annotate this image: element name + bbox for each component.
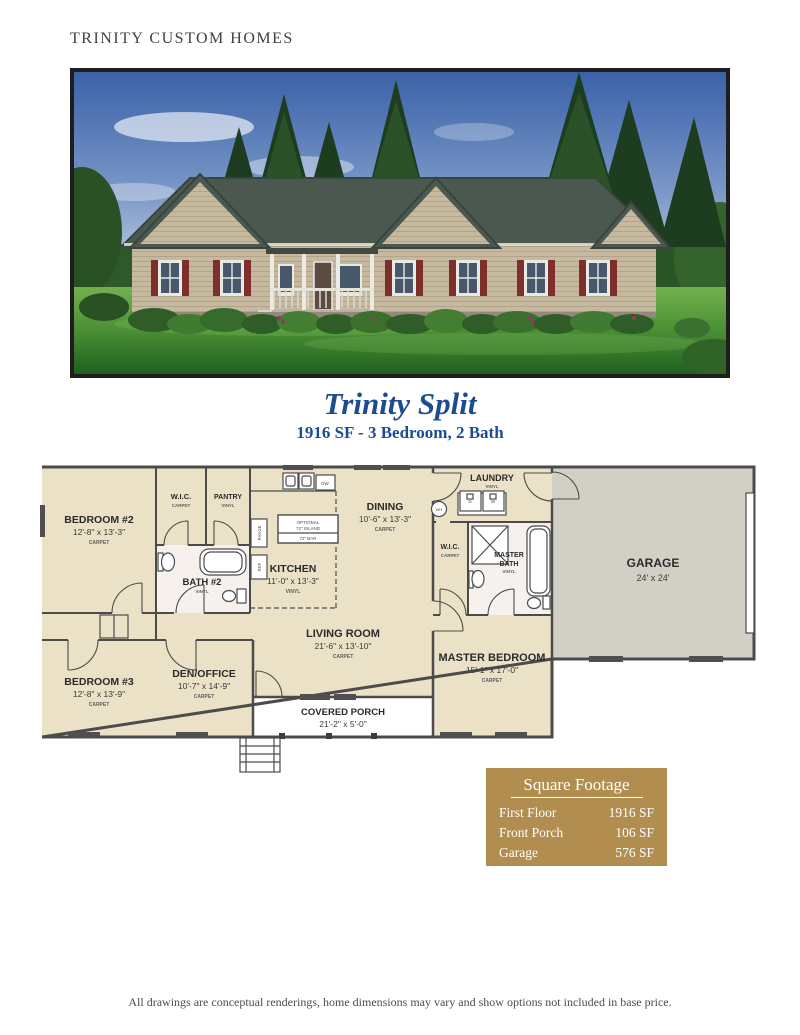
square-footage-panel: Square Footage First Floor 1916 SF Front… — [486, 768, 667, 866]
garage-side-panel — [746, 493, 754, 633]
svg-text:15'-1" x 17'-0": 15'-1" x 17'-0" — [466, 665, 518, 675]
svg-text:10'-6" x 13'-3": 10'-6" x 13'-3" — [359, 514, 411, 524]
master-wic-label: W.I.C. — [440, 544, 459, 551]
row-value: 106 SF — [615, 823, 654, 843]
sqft-row-first-floor: First Floor 1916 SF — [486, 803, 667, 823]
svg-text:CARPET: CARPET — [333, 654, 354, 660]
svg-text:24' x 24': 24' x 24' — [637, 573, 670, 583]
model-title: Trinity Split — [0, 386, 800, 422]
svg-text:CARPET: CARPET — [89, 540, 110, 546]
house-photo — [70, 68, 730, 378]
hall-wic-label: W.I.C. — [171, 492, 191, 501]
bar-label: 72" BAR — [299, 536, 317, 541]
svg-text:CARPET: CARPET — [172, 503, 191, 508]
svg-text:12'-8" x 13'-3": 12'-8" x 13'-3" — [73, 527, 125, 537]
svg-text:VINYL: VINYL — [286, 589, 301, 595]
row-value: 576 SF — [615, 843, 654, 863]
svg-text:21'-6" x 13'-10": 21'-6" x 13'-10" — [314, 641, 371, 651]
refrigerator-label: REF — [257, 562, 262, 571]
garage-label: GARAGE — [627, 556, 680, 570]
svg-text:CARPET: CARPET — [89, 702, 110, 708]
svg-text:10'-7" x 14'-9": 10'-7" x 14'-9" — [178, 681, 230, 691]
sqft-row-front-porch: Front Porch 106 SF — [486, 823, 667, 843]
footer-disclaimer: All drawings are conceptual renderings, … — [0, 995, 800, 1010]
svg-text:VINYL: VINYL — [485, 484, 499, 489]
model-subtitle: 1916 SF - 3 Bedroom, 2 Bath — [0, 423, 800, 443]
pantry-label: PANTRY — [214, 494, 242, 501]
floor-plan: BEDROOM #2 12'-8" x 13'-3" CARPET W.I.C.… — [40, 465, 760, 801]
svg-text:12'-8" x 13'-9": 12'-8" x 13'-9" — [73, 689, 125, 699]
island-label: OPTIONAL — [297, 520, 320, 525]
covered-porch-label: COVERED PORCH — [301, 707, 385, 718]
garage-door — [689, 656, 723, 662]
garage-door — [589, 656, 623, 662]
svg-text:VINYL: VINYL — [502, 569, 516, 574]
svg-text:CARPET: CARPET — [482, 678, 503, 684]
range-label: RANGE — [257, 525, 262, 540]
bath2-label: BATH #2 — [183, 577, 222, 588]
master-bath-label: MASTER — [494, 552, 524, 559]
svg-text:72" ISLAND: 72" ISLAND — [296, 526, 321, 531]
dishwasher-label: DW — [321, 481, 329, 486]
dining-label: DINING — [367, 501, 404, 513]
svg-text:VINYL: VINYL — [221, 503, 235, 508]
kitchen-label: KITCHEN — [270, 563, 317, 575]
svg-text:CARPET: CARPET — [194, 694, 215, 700]
brand-name: TRINITY CUSTOM HOMES — [70, 30, 294, 48]
svg-text:21'-2" x 5'-0": 21'-2" x 5'-0" — [319, 719, 367, 729]
svg-text:CARPET: CARPET — [441, 553, 460, 558]
water-heater-label: WH — [436, 507, 443, 512]
entry-steps — [240, 738, 280, 772]
svg-text:11'-0" x 13'-3": 11'-0" x 13'-3" — [267, 576, 319, 586]
bedroom2-label: BEDROOM #2 — [64, 514, 134, 526]
row-value: 1916 SF — [609, 803, 654, 823]
laundry-label: LAUNDRY — [470, 473, 514, 483]
living-room-label: LIVING ROOM — [306, 628, 380, 640]
row-label: Front Porch — [499, 823, 563, 843]
bedroom3-label: BEDROOM #3 — [64, 676, 134, 688]
title-underline — [511, 797, 643, 798]
svg-text:CARPET: CARPET — [375, 527, 396, 533]
square-footage-title: Square Footage — [486, 768, 667, 795]
floor-plan-drawing: BEDROOM #2 12'-8" x 13'-3" CARPET W.I.C.… — [40, 465, 760, 801]
row-label: First Floor — [499, 803, 556, 823]
svg-text:BATH: BATH — [500, 561, 519, 568]
svg-text:VINYL: VINYL — [195, 589, 209, 594]
house-rendering-scene — [74, 72, 726, 374]
den-office-label: DEN/OFFICE — [172, 668, 236, 680]
row-label: Garage — [499, 843, 538, 863]
master-bedroom-label: MASTER BEDROOM — [439, 652, 546, 664]
sqft-row-garage: Garage 576 SF — [486, 843, 667, 863]
